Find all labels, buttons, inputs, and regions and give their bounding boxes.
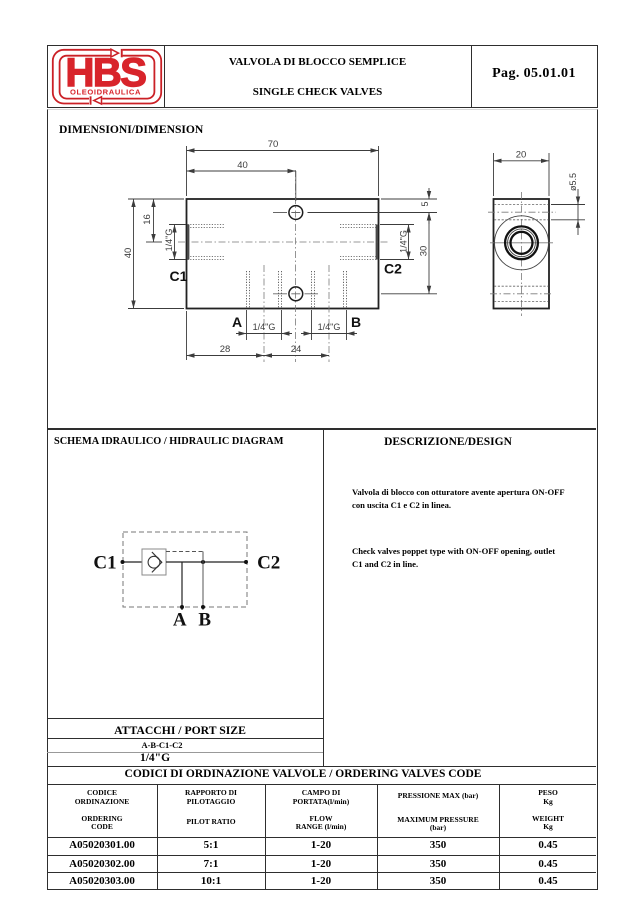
svg-text:B: B xyxy=(198,610,211,631)
svg-text:16: 16 xyxy=(142,214,153,225)
svg-text:C1: C1 xyxy=(170,268,188,284)
svg-text:C2: C2 xyxy=(257,552,280,573)
svg-text:OLEOIDRAULICA: OLEOIDRAULICA xyxy=(70,88,141,97)
svg-text:70: 70 xyxy=(268,139,279,150)
svg-text:C2: C2 xyxy=(384,261,402,277)
svg-text:1/4"G: 1/4"G xyxy=(399,230,409,253)
svg-text:1/4"G: 1/4"G xyxy=(318,322,341,332)
svg-text:1/4"G: 1/4"G xyxy=(164,229,174,252)
svg-text:40: 40 xyxy=(123,248,134,259)
svg-text:40: 40 xyxy=(237,160,248,171)
svg-text:28: 28 xyxy=(220,344,231,355)
svg-text:1/4"G: 1/4"G xyxy=(253,322,276,332)
svg-text:A: A xyxy=(232,314,242,330)
svg-text:ø5.5: ø5.5 xyxy=(568,173,578,191)
svg-text:5: 5 xyxy=(420,201,430,206)
svg-text:B: B xyxy=(351,314,361,330)
svg-text:24: 24 xyxy=(291,344,302,355)
svg-text:A: A xyxy=(173,610,187,631)
svg-text:30: 30 xyxy=(419,246,430,257)
svg-text:C1: C1 xyxy=(93,552,116,573)
svg-text:20: 20 xyxy=(516,150,527,161)
